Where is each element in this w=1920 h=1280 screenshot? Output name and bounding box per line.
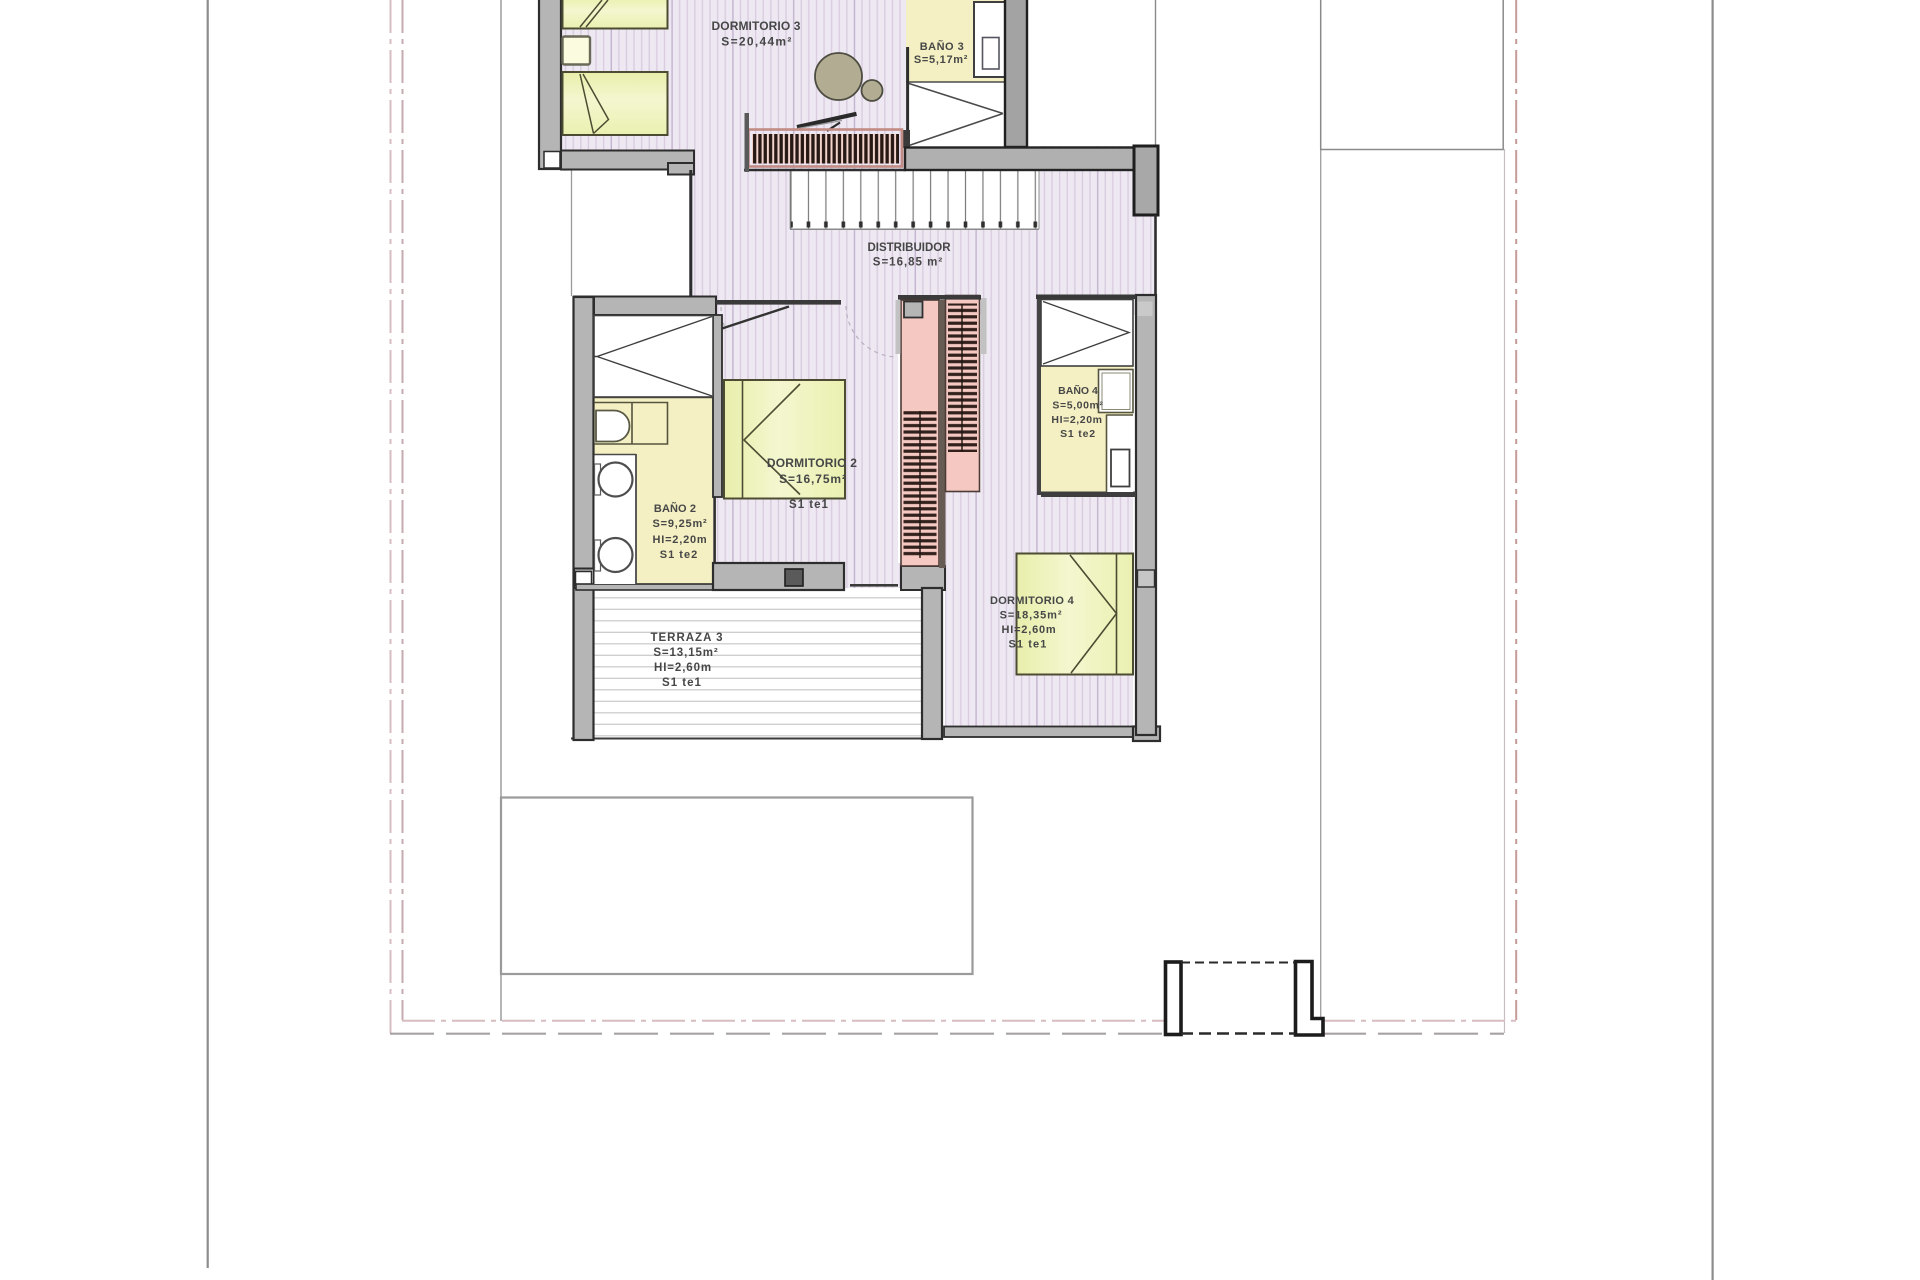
- svg-text:S1 te1: S1 te1: [662, 677, 702, 689]
- svg-text:S1 te1: S1 te1: [1008, 639, 1047, 651]
- svg-text:S=18,35m²: S=18,35m²: [1000, 610, 1063, 622]
- svg-text:S=13,15m²: S=13,15m²: [653, 647, 718, 659]
- svg-text:S=16,75m²: S=16,75m²: [779, 472, 847, 486]
- svg-text:S1 te2: S1 te2: [1060, 428, 1096, 440]
- svg-text:DORMITORIO 4: DORMITORIO 4: [990, 595, 1075, 607]
- svg-text:DORMITORIO 2: DORMITORIO 2: [767, 456, 857, 470]
- svg-text:BAÑO 2: BAÑO 2: [654, 502, 696, 515]
- svg-text:HI=2,60m: HI=2,60m: [654, 662, 712, 674]
- svg-text:S=16,85 m²: S=16,85 m²: [873, 257, 943, 269]
- svg-text:HI=2,60m: HI=2,60m: [1001, 624, 1056, 636]
- svg-text:DORMITORIO 3: DORMITORIO 3: [712, 19, 801, 33]
- svg-text:BAÑO 3: BAÑO 3: [920, 40, 965, 53]
- svg-text:TERRAZA 3: TERRAZA 3: [650, 632, 723, 644]
- svg-text:S=9,25m²: S=9,25m²: [652, 518, 707, 530]
- svg-text:BAÑO 4: BAÑO 4: [1058, 384, 1098, 397]
- svg-text:S=5,17m²: S=5,17m²: [914, 54, 968, 66]
- svg-text:HI=2,20m: HI=2,20m: [1051, 414, 1102, 426]
- svg-text:DISTRIBUIDOR: DISTRIBUIDOR: [867, 242, 951, 254]
- svg-text:S=5,00m²: S=5,00m²: [1052, 400, 1103, 412]
- svg-text:S1 te2: S1 te2: [660, 549, 698, 561]
- svg-text:S1 te1: S1 te1: [789, 499, 829, 511]
- svg-text:S=20,44m²: S=20,44m²: [721, 35, 792, 49]
- svg-text:HI=2,20m: HI=2,20m: [652, 534, 707, 546]
